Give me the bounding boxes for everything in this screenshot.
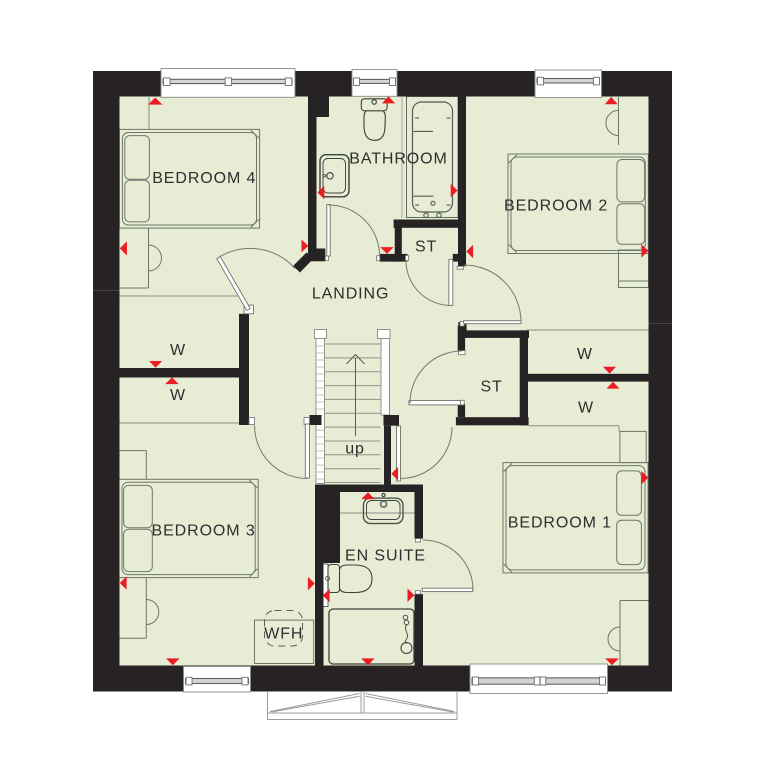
- svg-text:W: W: [170, 342, 186, 359]
- svg-text:W: W: [170, 387, 186, 404]
- svg-text:EN SUITE: EN SUITE: [345, 547, 426, 564]
- svg-text:BEDROOM 2: BEDROOM 2: [504, 198, 608, 215]
- svg-text:LANDING: LANDING: [312, 286, 389, 303]
- svg-text:BEDROOM 1: BEDROOM 1: [508, 514, 612, 531]
- svg-text:ST: ST: [415, 239, 437, 256]
- svg-text:WFH: WFH: [264, 626, 303, 643]
- svg-text:W: W: [578, 399, 594, 416]
- svg-text:BEDROOM 3: BEDROOM 3: [152, 523, 256, 540]
- svg-text:BATHROOM: BATHROOM: [349, 150, 447, 167]
- svg-text:W: W: [577, 346, 593, 363]
- svg-text:up: up: [345, 441, 365, 458]
- svg-text:ST: ST: [480, 378, 502, 395]
- svg-text:BEDROOM 4: BEDROOM 4: [152, 170, 256, 187]
